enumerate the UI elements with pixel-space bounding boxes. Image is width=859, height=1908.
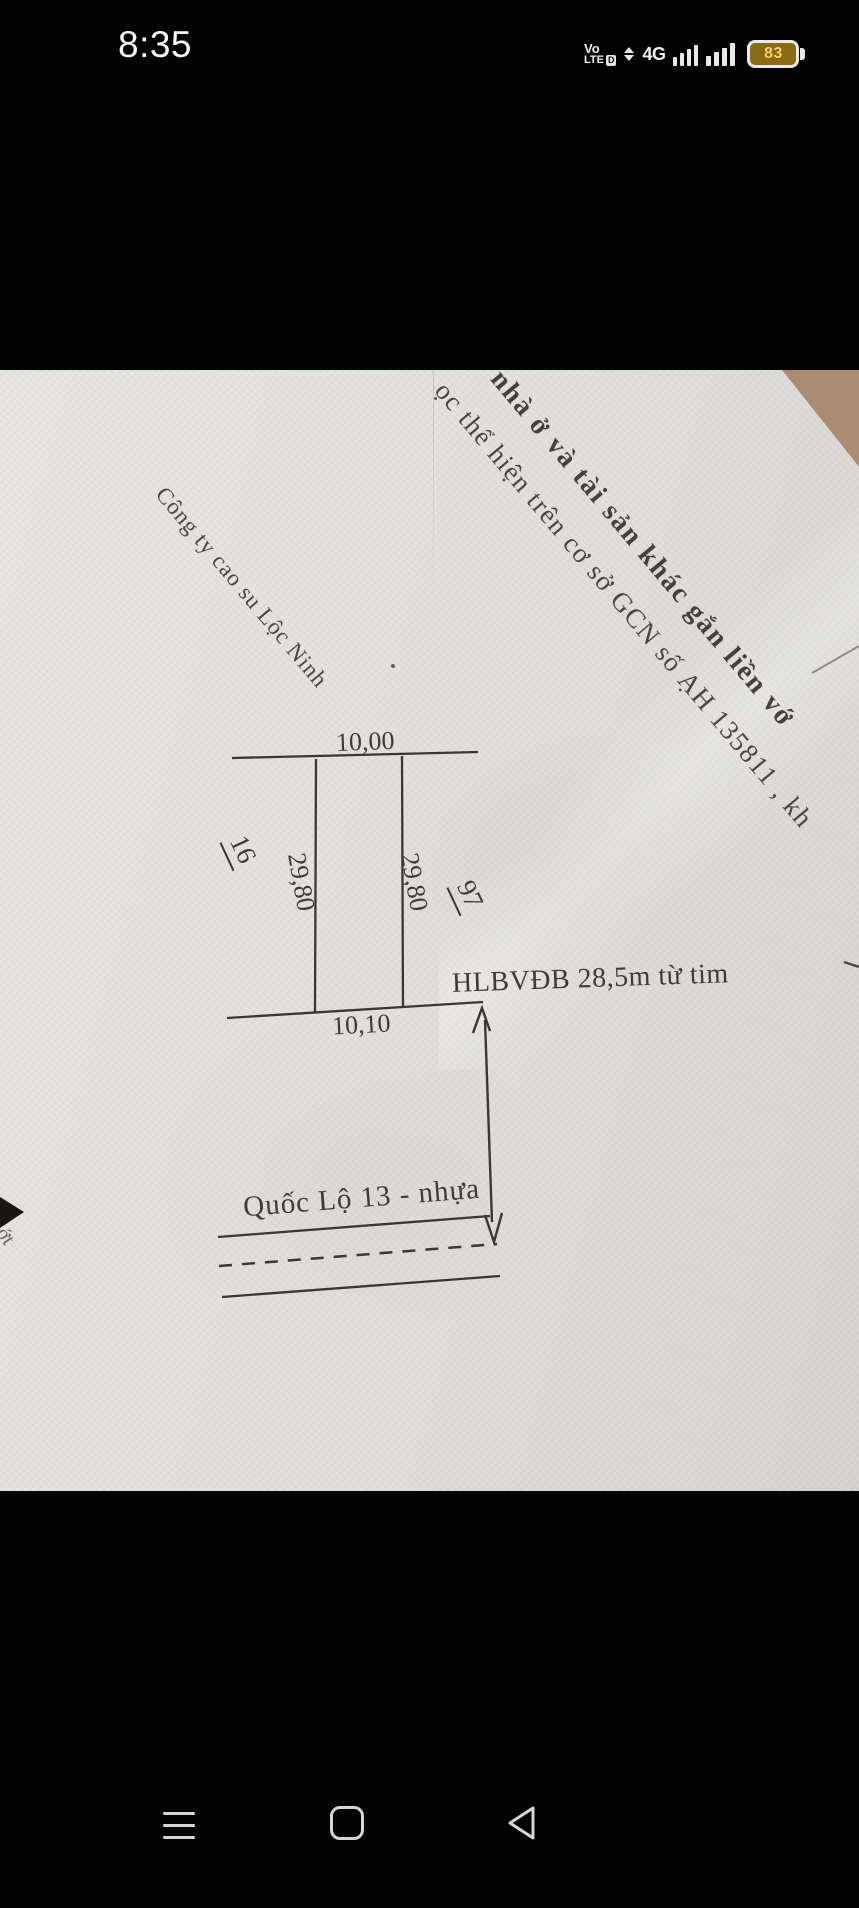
network-type-label: 4G [642, 44, 665, 65]
battery-percent: 83 [764, 45, 783, 63]
signal-bars-icon-sim2 [706, 42, 735, 66]
cadastral-sketch-lines [0, 370, 859, 1491]
menu-bar-1 [163, 1812, 195, 1815]
home-button[interactable] [330, 1806, 364, 1840]
document-photo[interactable]: nhà ở và tài sản khác gắn liền vớ ọc thể… [0, 370, 859, 1491]
volte-label-bottom: LTE [584, 55, 604, 66]
back-button[interactable] [504, 1804, 538, 1842]
download-arrow-icon [624, 55, 634, 61]
setback-arrowhead-down [485, 1213, 502, 1242]
volte-icon: Vo LTE D [584, 42, 616, 66]
data-transfer-arrows-icon [624, 47, 634, 61]
recents-button[interactable] [163, 1812, 195, 1839]
left-edge-dark-wedge [0, 1197, 24, 1228]
upload-arrow-icon [624, 47, 634, 53]
road-centerline-dashed [219, 1244, 497, 1266]
menu-bar-3 [163, 1836, 195, 1839]
plot-bottom-width-label: 10,10 [331, 1008, 391, 1041]
small-ink-dot [391, 664, 395, 668]
battery-cap [800, 48, 805, 60]
setback-arrowhead-up [473, 1008, 490, 1033]
battery-icon: 83 [747, 40, 799, 68]
right-edge-tick [844, 962, 859, 967]
status-time: 8:35 [118, 24, 192, 66]
back-triangle-icon [504, 1804, 538, 1842]
hd-icon: D [606, 55, 617, 66]
setback-arrow-shaft [485, 1020, 492, 1222]
status-icons: Vo LTE D 4G 83 [584, 34, 799, 74]
pen-stroke-right-edge [812, 646, 859, 673]
phone-screen: 8:35 Vo LTE D 4G 83 [0, 0, 859, 1908]
signal-bars-icon-sim1 [673, 42, 698, 66]
menu-bar-2 [163, 1824, 195, 1827]
road-edge-line-bottom [222, 1276, 500, 1297]
plot-top-width-label: 10,00 [335, 726, 395, 758]
